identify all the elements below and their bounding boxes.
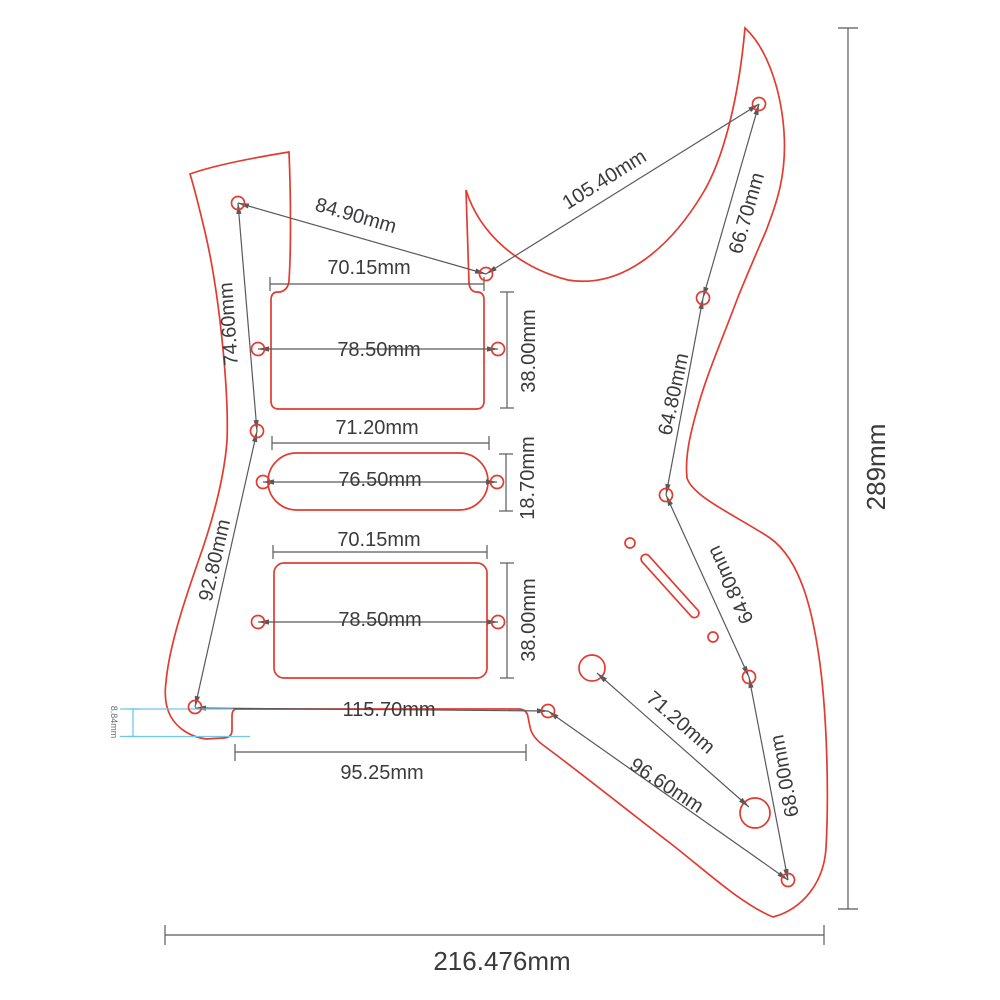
dim-label-68-00: 68.00mm xyxy=(766,733,804,819)
pickguard-dimension-diagram: 84.90mm 105.40mm 66.70mm 74.60mm 92.80mm… xyxy=(0,0,1000,1000)
dim-line-105-40 xyxy=(486,104,759,274)
dim-label-66-70: 66.70mm xyxy=(725,170,769,256)
dim-label-71-20-single: 71.20mm xyxy=(335,417,418,439)
dim-label-78-50-neck: 78.50mm xyxy=(337,339,420,361)
pickguard-shape xyxy=(165,28,827,917)
dim-label-64-80-upper: 64.80mm xyxy=(655,351,694,437)
overall-height-label: 289mm xyxy=(861,424,891,511)
diagram-canvas: 84.90mm 105.40mm 66.70mm 74.60mm 92.80mm… xyxy=(0,0,1000,1000)
dim-label-8-84: 8.84mm xyxy=(109,706,119,739)
dim-label-70-15-neck: 70.15mm xyxy=(327,257,410,279)
dim-label-38-00-bridge: 38.00mm xyxy=(518,578,540,661)
dim-label-64-80-lower: 64.80mm xyxy=(703,542,758,627)
wiring-hole xyxy=(625,538,635,548)
screw-holes xyxy=(189,98,795,887)
dim-label-74-60: 74.60mm xyxy=(215,282,243,367)
dim-label-38-00-neck: 38.00mm xyxy=(518,309,540,392)
overall-width-label: 216.476mm xyxy=(433,946,570,976)
wiring-hole xyxy=(708,632,718,642)
dim-label-76-50: 76.50mm xyxy=(338,469,421,491)
dim-label-95-25: 95.25mm xyxy=(340,762,423,784)
dim-label-92-80: 92.80mm xyxy=(195,517,235,603)
dim-line-74-60 xyxy=(238,203,257,431)
selector-switch-slot xyxy=(639,553,701,620)
dim-label-84-90: 84.90mm xyxy=(313,194,399,238)
dim-label-18-70: 18.70mm xyxy=(517,436,539,519)
dim-label-70-15-bridge: 70.15mm xyxy=(337,529,420,551)
dimension-lines xyxy=(195,104,788,880)
dim-label-115-70: 115.70mm xyxy=(342,699,435,721)
pickguard-outline xyxy=(165,28,827,917)
dim-label-96-60: 96.60mm xyxy=(626,754,708,818)
dim-label-78-50-bridge: 78.50mm xyxy=(338,609,421,631)
dimension-labels: 84.90mm 105.40mm 66.70mm 74.60mm 92.80mm… xyxy=(109,145,891,976)
